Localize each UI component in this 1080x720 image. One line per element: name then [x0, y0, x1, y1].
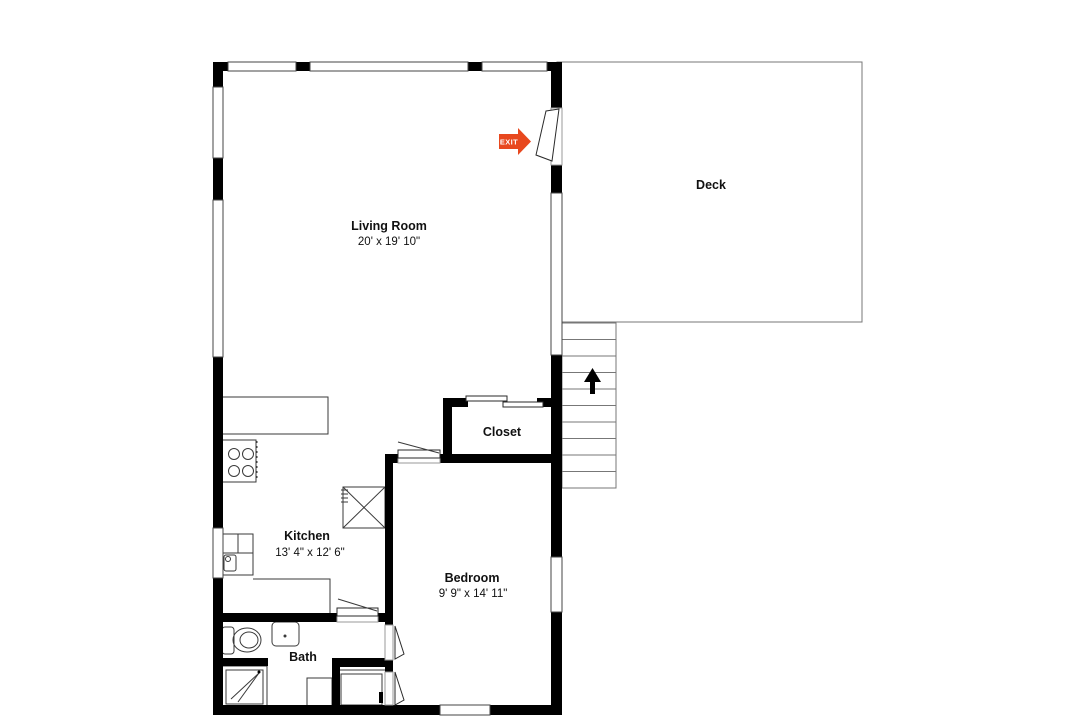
floor-plan-canvas: EXIT Living Room 20' x 19' 10" Deck Clos…	[0, 0, 1080, 720]
kitchen-label: Kitchen	[284, 529, 330, 543]
washer-door-opening	[385, 672, 393, 705]
kitchen-sink-cabinet	[222, 534, 253, 575]
window-top-1	[228, 62, 296, 71]
kitchen-floor-boundary	[253, 579, 330, 613]
exit-sign-label: EXIT	[500, 138, 518, 147]
window-top-2	[310, 62, 468, 71]
bedroom-dims: 9' 9" x 14' 11"	[439, 588, 508, 600]
deck-outline	[557, 62, 862, 322]
living-room-dims: 20' x 19' 10"	[358, 236, 420, 248]
kitchen-dims: 13' 4" x 12' 6"	[275, 547, 344, 559]
washer-icon	[336, 670, 386, 708]
bath-step	[307, 678, 332, 707]
window-left-3	[213, 528, 223, 578]
closet-sliding-door	[466, 396, 543, 407]
washer-door-leaf	[395, 672, 404, 705]
room-labels: Living Room 20' x 19' 10" Deck Closet Ki…	[275, 178, 726, 664]
interior-walls	[213, 398, 562, 715]
bath-label: Bath	[289, 650, 317, 664]
stairs-up-arrow-icon	[584, 368, 601, 394]
stairs	[562, 323, 616, 488]
shower-icon	[222, 666, 267, 708]
window-top-3	[482, 62, 547, 71]
kitchen-fixtures	[222, 397, 385, 613]
exit-sign-arrow-icon	[518, 128, 531, 155]
window-left-2	[213, 200, 223, 357]
deck-area	[557, 62, 862, 322]
deck-label: Deck	[696, 178, 726, 192]
window-right-bedroom	[551, 557, 562, 612]
utility-closet-icon	[341, 487, 385, 528]
toilet-icon	[222, 627, 261, 654]
kitchen-counter	[222, 397, 328, 434]
floor-plan-page: EXIT Living Room 20' x 19' 10" Deck Clos…	[0, 0, 1080, 720]
bedroom-label: Bedroom	[445, 571, 500, 585]
stair-treads	[562, 340, 616, 472]
exit-sign: EXIT	[499, 128, 531, 155]
closet-label: Closet	[483, 425, 522, 439]
window-left-1	[213, 87, 223, 158]
window-right-living	[551, 193, 562, 355]
bedroom-bath-door-opening	[385, 625, 393, 660]
bedroom-bath-door-leaf	[395, 626, 404, 659]
living-room-label: Living Room	[351, 219, 427, 233]
stove-icon	[222, 440, 257, 482]
window-bottom-bedroom	[440, 705, 490, 715]
